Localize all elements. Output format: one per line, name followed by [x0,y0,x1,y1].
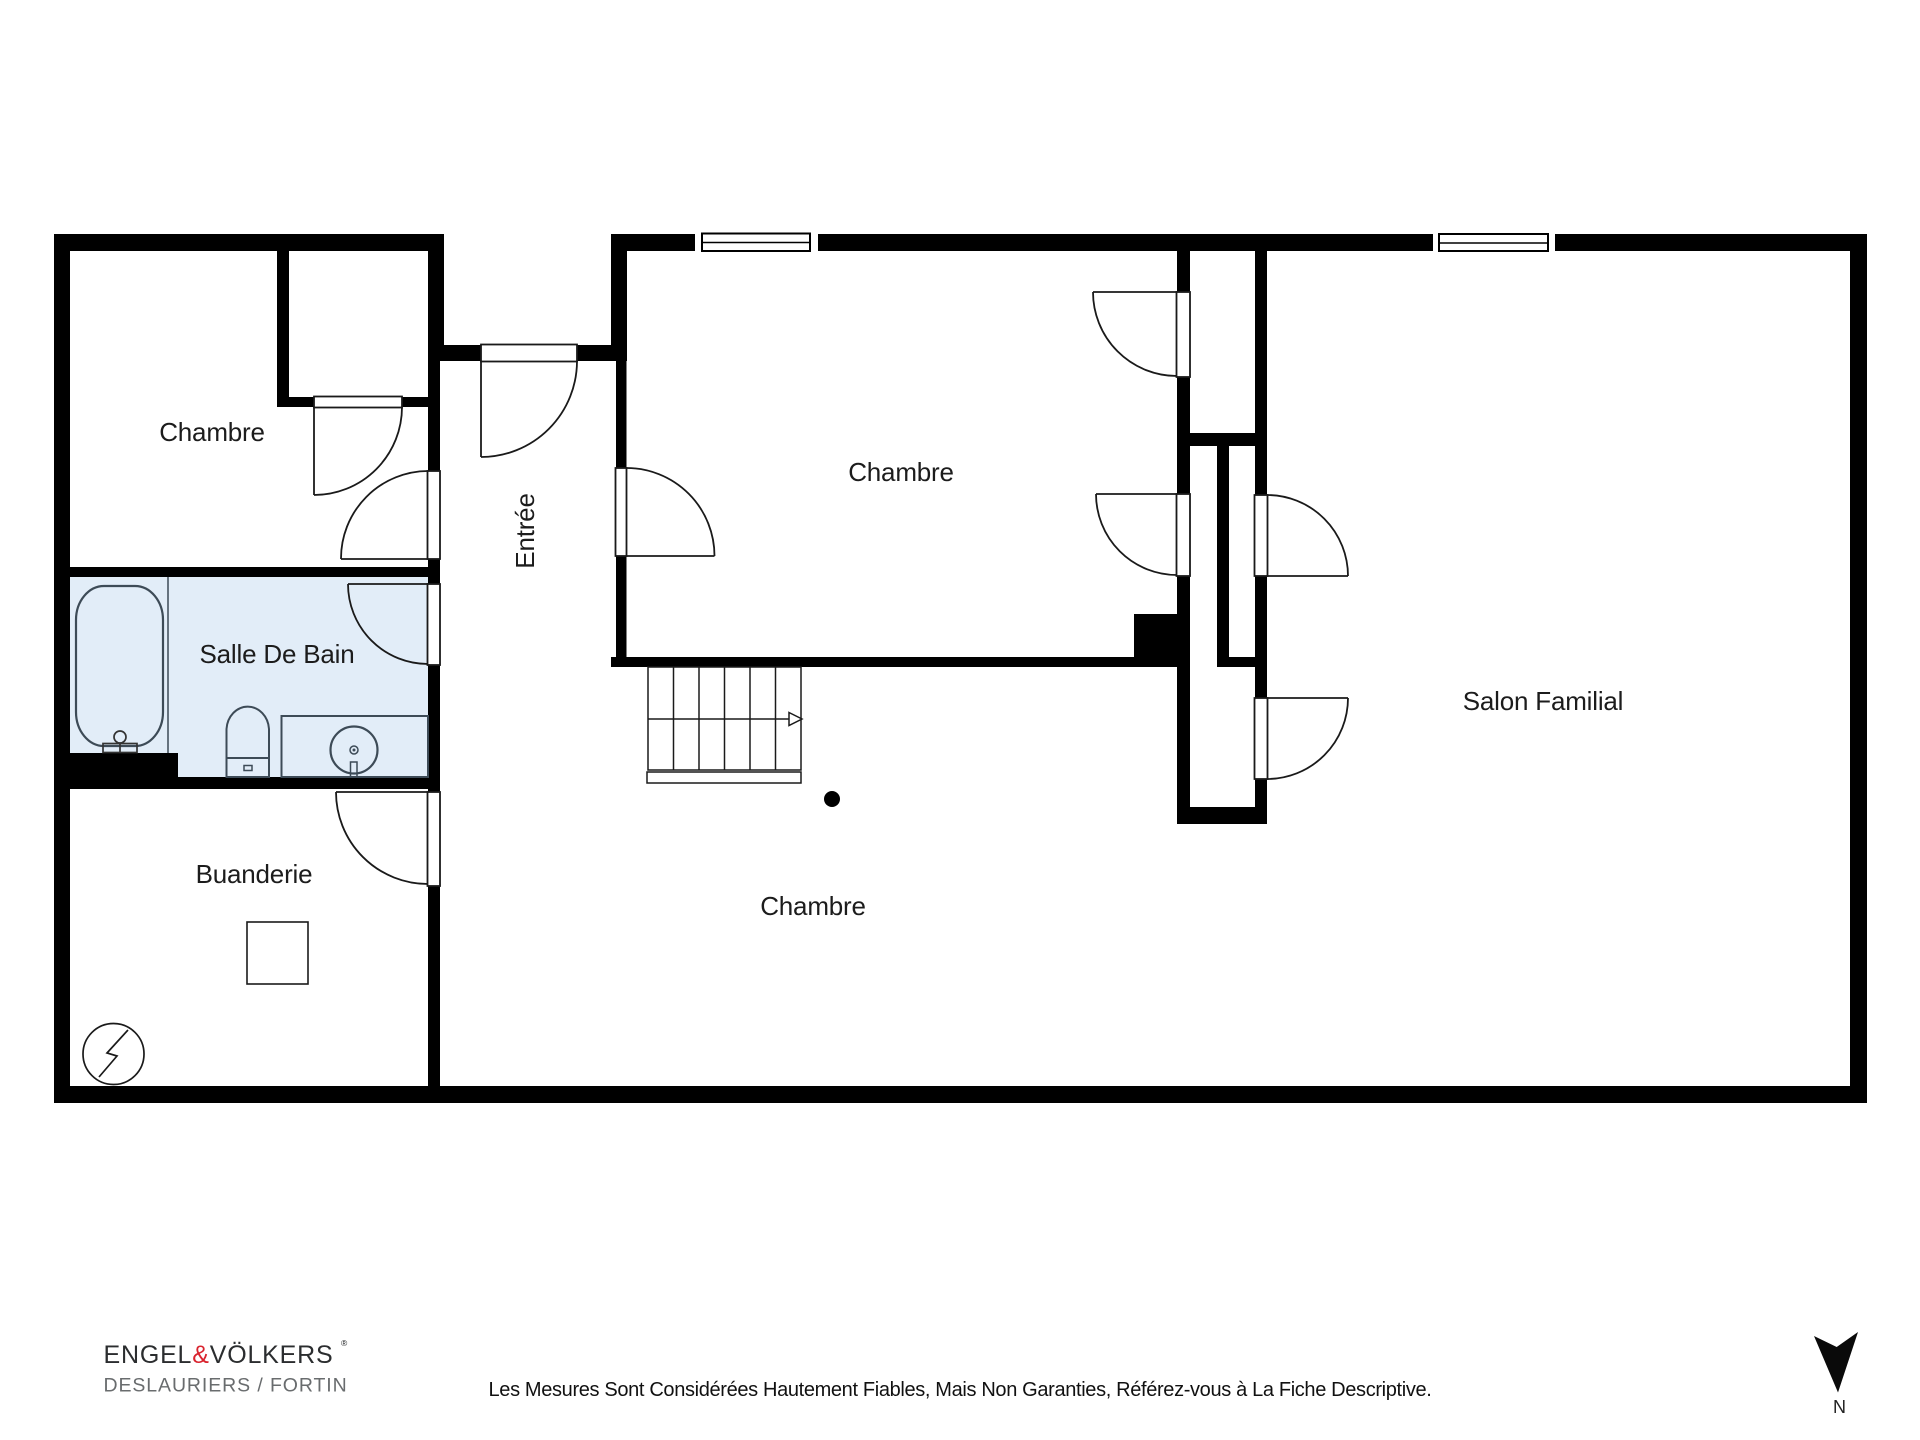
svg-text:Les Mesures Sont Considérées H: Les Mesures Sont Considérées Hautement F… [489,1379,1432,1401]
svg-text:Salle De Bain: Salle De Bain [200,639,355,669]
svg-text:®: ® [341,1338,348,1348]
svg-text:Entrée: Entrée [510,493,540,568]
svg-text:ENGEL&VÖLKERS: ENGEL&VÖLKERS [104,1341,334,1369]
svg-text:DESLAURIERS / FORTIN: DESLAURIERS / FORTIN [104,1375,348,1397]
svg-text:Salon Familial: Salon Familial [1463,686,1624,716]
svg-text:Chambre: Chambre [848,457,954,487]
svg-text:Chambre: Chambre [760,891,866,921]
svg-text:Chambre: Chambre [159,417,265,447]
svg-text:N: N [1833,1397,1846,1417]
svg-text:Buanderie: Buanderie [196,859,313,889]
